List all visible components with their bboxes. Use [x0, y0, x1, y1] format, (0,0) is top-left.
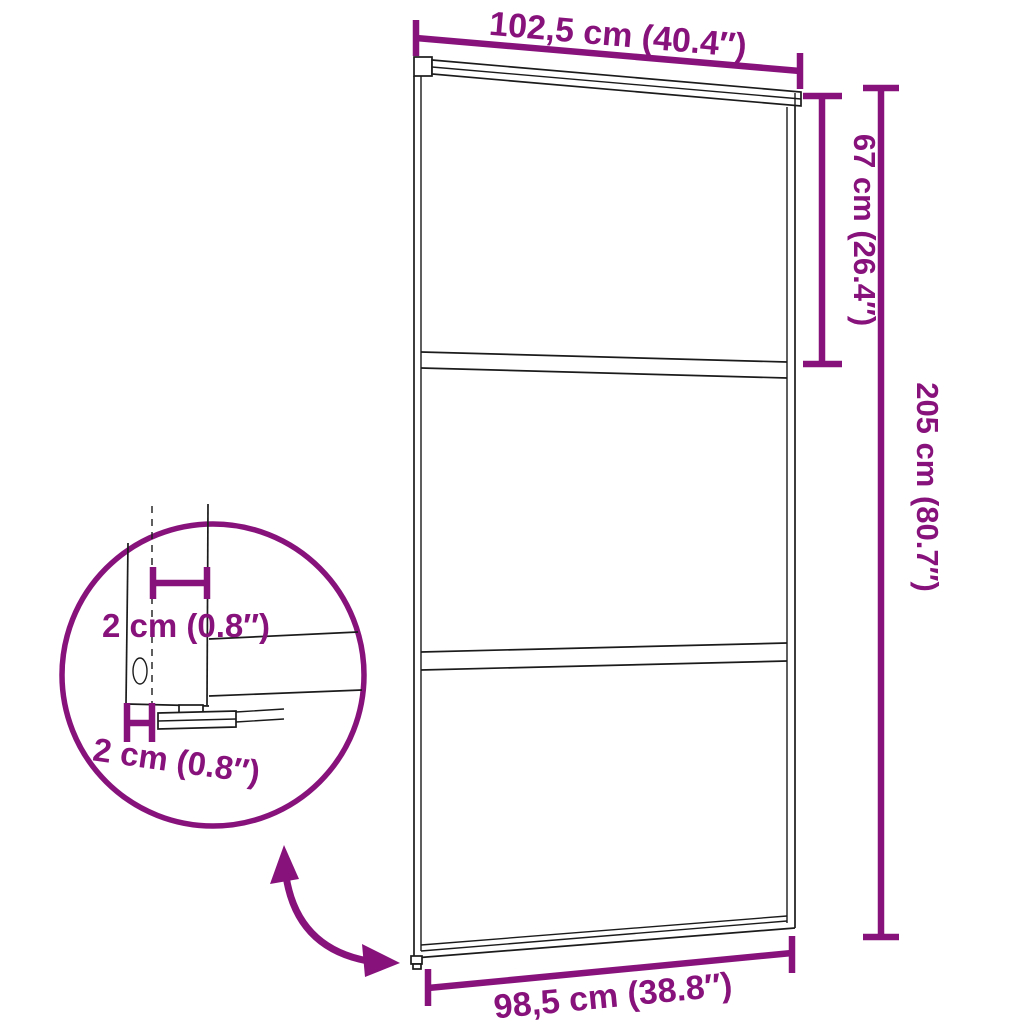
slide-arrow-icon	[270, 845, 400, 977]
dimension-diagram: 2 cm (0.8″) 2 cm (0.8″) 102,5 cm (40.4″)	[0, 0, 1024, 1024]
guide-plate-extension	[236, 709, 284, 722]
stile-front-edge	[207, 504, 208, 705]
floor-guide	[411, 956, 422, 969]
door-drawing	[411, 57, 801, 969]
dimension-upper-height: 67 cm (26.4″)	[803, 96, 882, 364]
dimension-label-total-height: 205 cm (80.7″)	[910, 382, 945, 592]
fixing-hole	[133, 658, 147, 684]
bottom-rail-inner	[421, 921, 787, 951]
door-frame	[414, 76, 795, 958]
dimension-label-upper-height: 67 cm (26.4″)	[847, 134, 882, 326]
divider-bar-lower	[421, 643, 787, 670]
detail-inset: 2 cm (0.8″) 2 cm (0.8″)	[62, 504, 364, 826]
bottom-rail-outer	[414, 928, 795, 958]
track-bevel-line	[432, 67, 801, 99]
bottom-rail-glazing-line	[421, 916, 787, 945]
dimension-label-bottom-width: 98,5 cm (38.8″)	[492, 966, 734, 1024]
detail-floor-guide	[158, 705, 284, 729]
dimension-label-detail-width: 2 cm (0.8″)	[102, 607, 270, 644]
dimension-bottom-width: 98,5 cm (38.8″)	[428, 936, 792, 1024]
divider-bar-upper	[421, 352, 787, 378]
dimension-label-detail-depth: 2 cm (0.8″)	[91, 731, 263, 791]
product-image: 2 cm (0.8″) 2 cm (0.8″) 102,5 cm (40.4″)	[0, 0, 1024, 1024]
track-left-cap	[414, 57, 432, 76]
